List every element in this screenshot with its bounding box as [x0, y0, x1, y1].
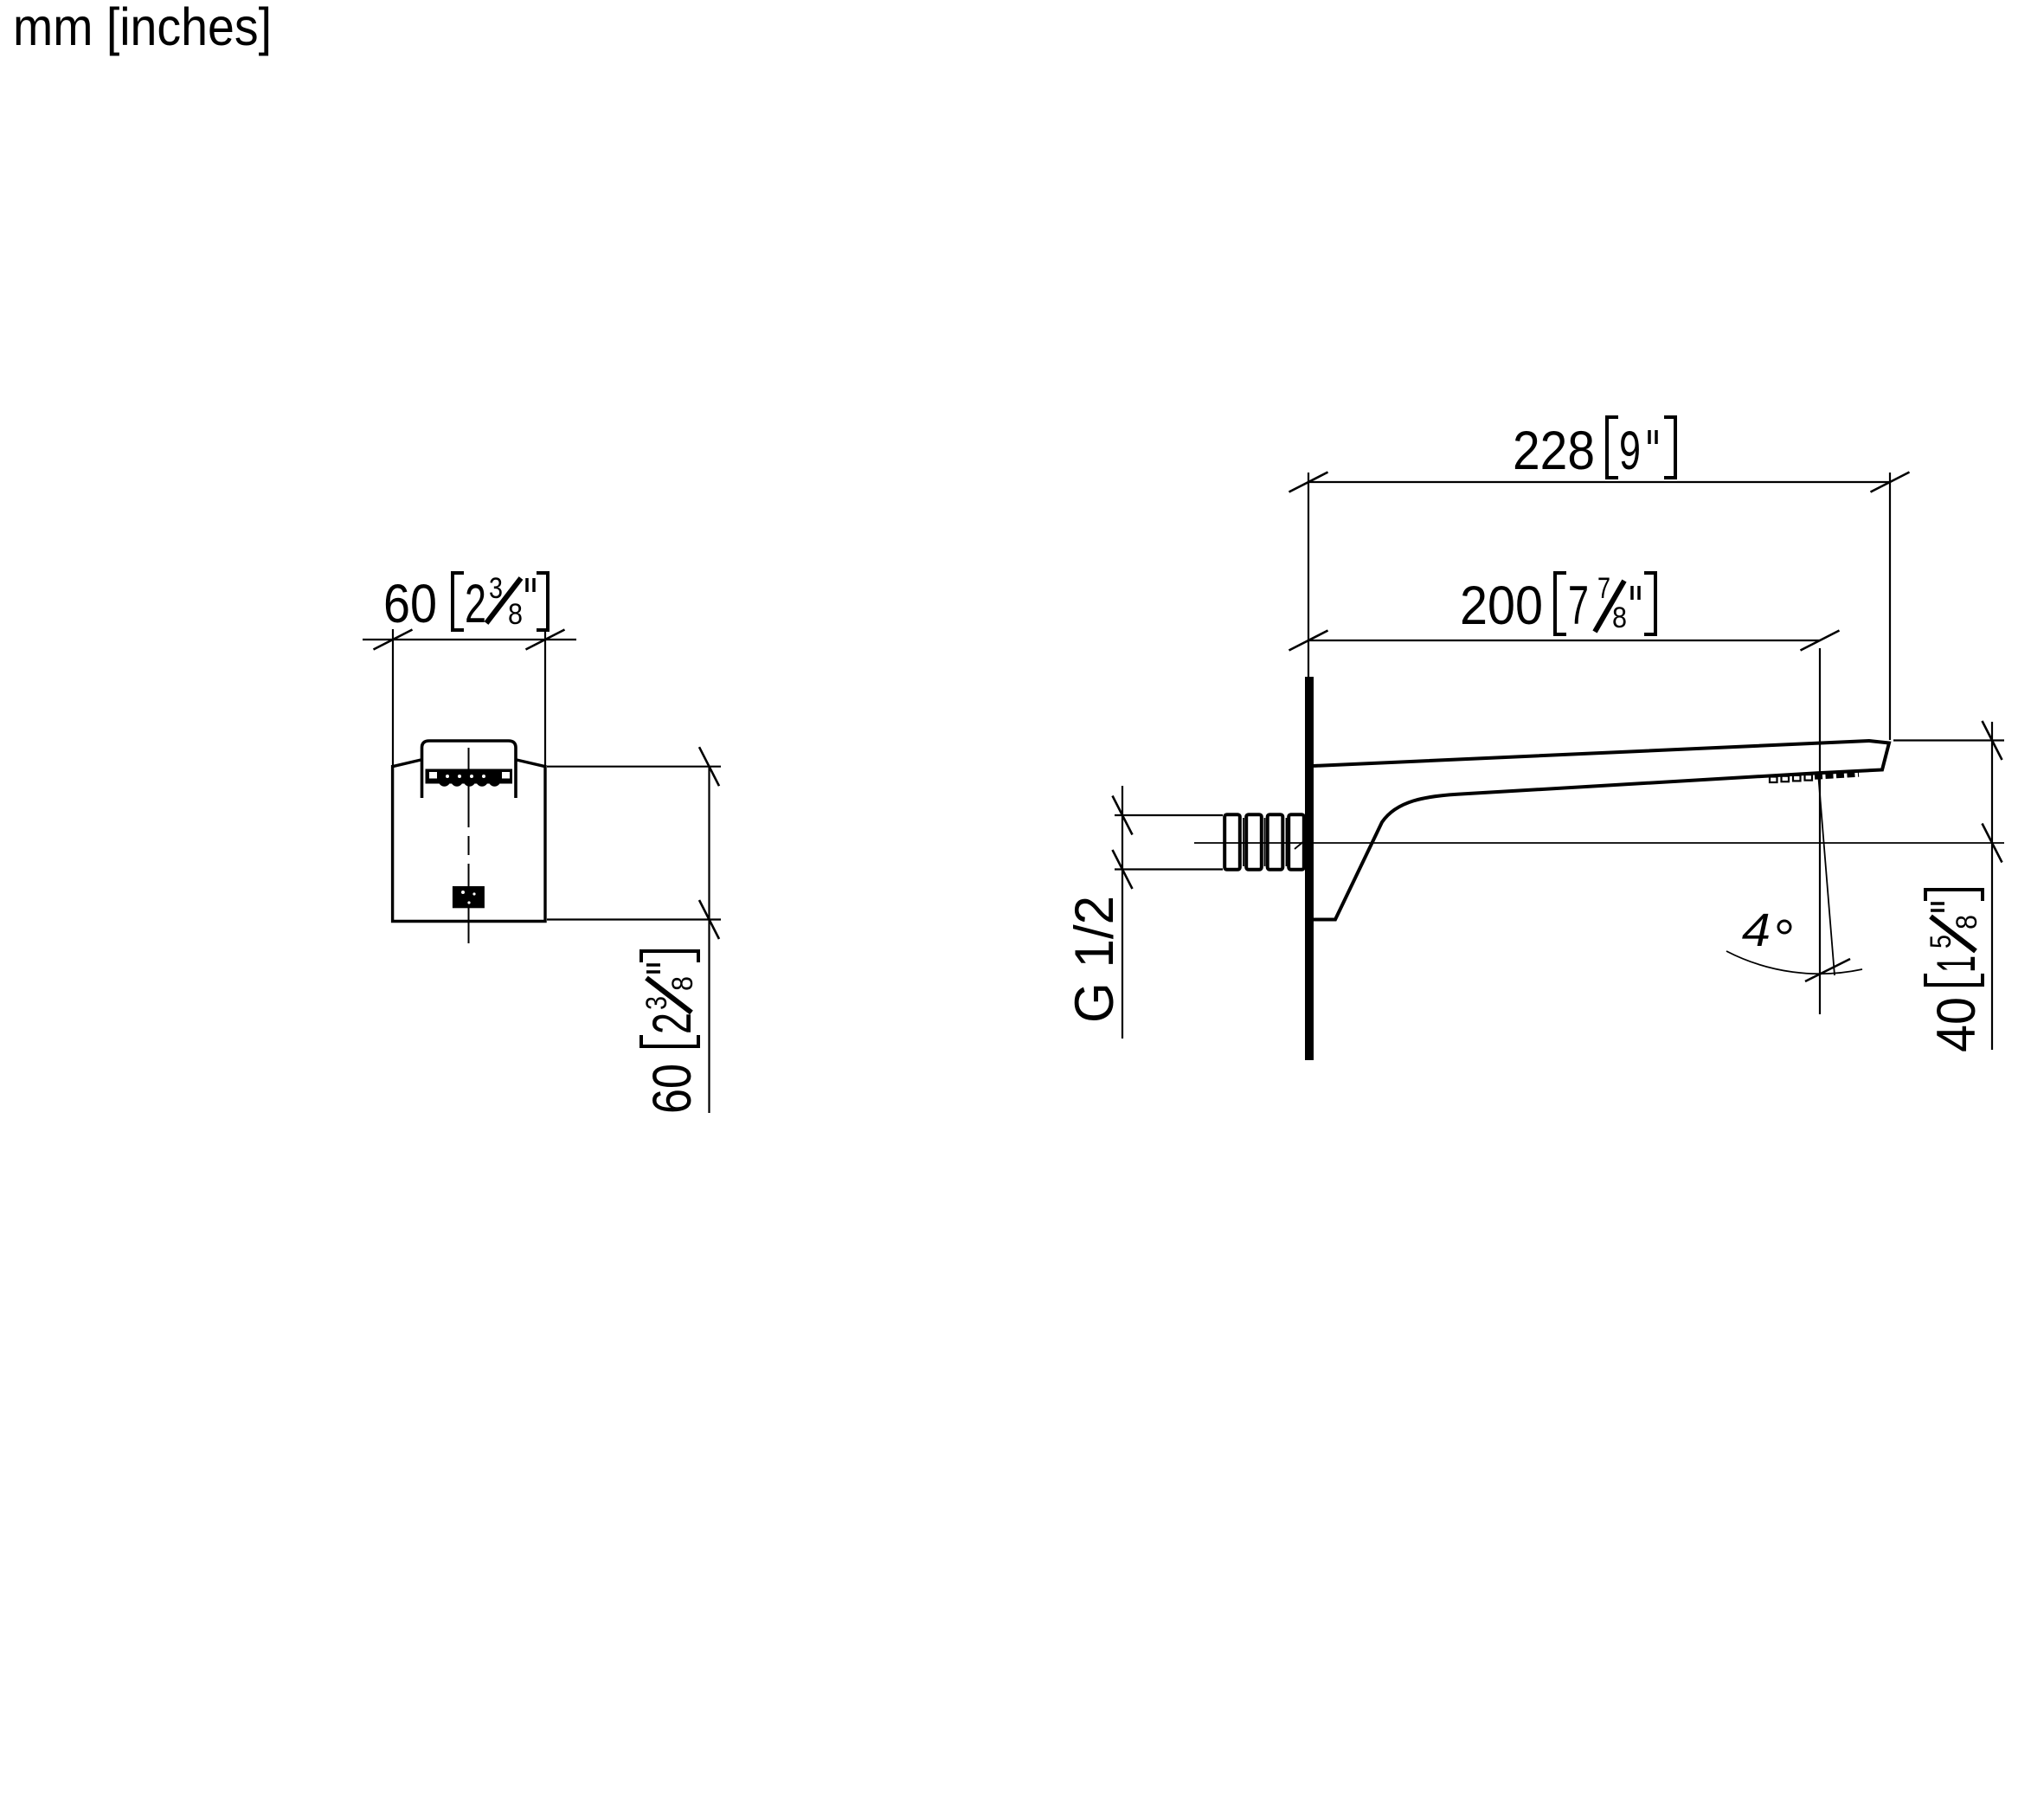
svg-text:8: 8: [666, 976, 699, 991]
svg-text:200: 200: [1460, 576, 1543, 636]
svg-text:2: 2: [642, 1013, 703, 1034]
svg-text:60: 60: [383, 574, 437, 634]
svg-text:3: 3: [640, 996, 673, 1010]
svg-text:8: 8: [1612, 601, 1627, 634]
svg-text:8: 8: [1951, 915, 1983, 929]
svg-text:7: 7: [1568, 576, 1589, 636]
svg-text:228: 228: [1513, 421, 1595, 481]
svg-text:9: 9: [1619, 421, 1641, 481]
svg-text:8: 8: [508, 598, 523, 631]
svg-text:7: 7: [1597, 572, 1610, 605]
svg-text:1: 1: [1926, 955, 1987, 973]
svg-text:2: 2: [465, 574, 486, 634]
svg-text:5: 5: [1925, 935, 1957, 949]
svg-text:40: 40: [1926, 997, 1987, 1052]
svg-text:mm [inches]: mm [inches]: [13, 0, 272, 56]
svg-text:60: 60: [642, 1064, 703, 1114]
svg-text:3: 3: [489, 572, 503, 605]
svg-text:G 1/2: G 1/2: [1064, 896, 1125, 1023]
